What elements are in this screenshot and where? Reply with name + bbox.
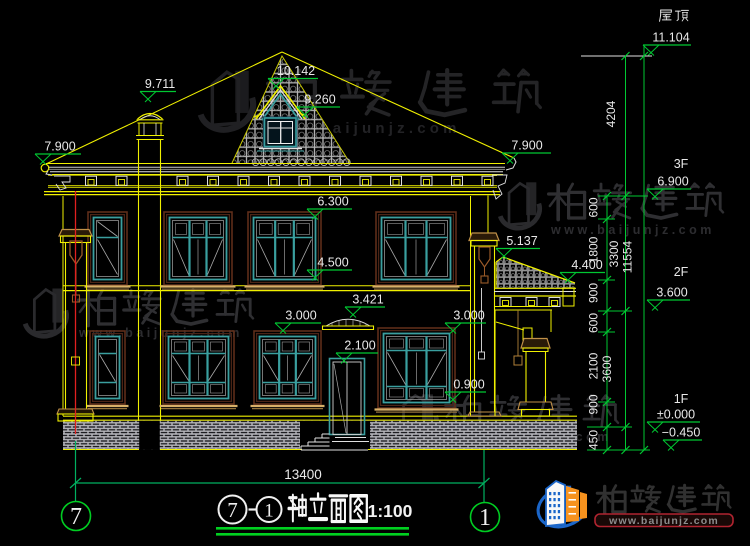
svg-text:7: 7	[227, 498, 238, 522]
svg-text:6.900: 6.900	[657, 175, 688, 189]
svg-text:5.137: 5.137	[506, 234, 537, 248]
svg-text:11554: 11554	[621, 240, 635, 273]
svg-text:3.000: 3.000	[453, 309, 484, 323]
svg-text:1800: 1800	[587, 236, 601, 263]
svg-text:www.baijunjz.com: www.baijunjz.com	[608, 515, 719, 527]
svg-text:3.600: 3.600	[656, 286, 687, 300]
svg-text:600: 600	[587, 197, 601, 217]
svg-text:900: 900	[587, 394, 601, 414]
svg-text:9.260: 9.260	[304, 93, 335, 107]
svg-text:6.300: 6.300	[317, 195, 348, 209]
svg-text:3600: 3600	[600, 355, 614, 382]
svg-text:3F: 3F	[674, 157, 689, 171]
svg-text:10.142: 10.142	[277, 64, 315, 78]
svg-text:1F: 1F	[674, 392, 689, 406]
svg-text:1:100: 1:100	[368, 501, 413, 521]
svg-text:4204: 4204	[604, 100, 618, 127]
svg-text:13400: 13400	[284, 467, 322, 482]
svg-text:2.100: 2.100	[344, 339, 375, 353]
svg-text:±0.000: ±0.000	[657, 408, 695, 422]
svg-text:www.baijunjz.com: www.baijunjz.com	[550, 223, 715, 237]
svg-text:9.711: 9.711	[145, 77, 175, 91]
svg-text:3300: 3300	[607, 240, 621, 267]
svg-text:450: 450	[587, 430, 601, 450]
svg-text:0.900: 0.900	[453, 378, 484, 392]
svg-text:2100: 2100	[587, 352, 601, 379]
svg-text:2F: 2F	[674, 265, 689, 279]
svg-text:11.104: 11.104	[652, 31, 689, 45]
svg-text:3.421: 3.421	[352, 293, 383, 307]
svg-text:1: 1	[264, 501, 274, 522]
svg-text:600: 600	[587, 313, 601, 333]
svg-text:4.500: 4.500	[317, 256, 348, 270]
svg-text:−0.450: −0.450	[662, 426, 701, 440]
svg-text:7: 7	[70, 504, 82, 530]
svg-text:7.900: 7.900	[44, 140, 75, 154]
svg-text:1: 1	[479, 505, 491, 531]
svg-text:3.000: 3.000	[285, 309, 316, 323]
svg-text:7.900: 7.900	[511, 139, 542, 153]
svg-text:900: 900	[587, 283, 601, 303]
